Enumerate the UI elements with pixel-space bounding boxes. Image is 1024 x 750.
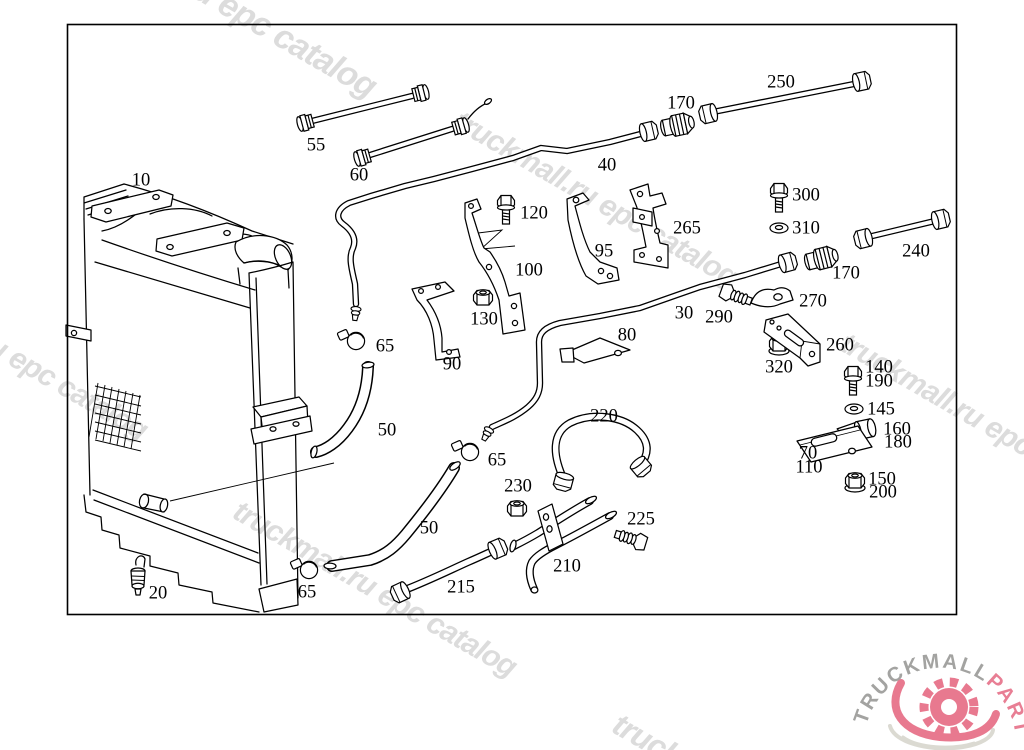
part-label-170: 170 (667, 94, 695, 114)
part-label-200: 200 (869, 483, 897, 503)
part-label-260: 260 (826, 336, 854, 356)
washer-145 (845, 404, 863, 414)
bolt-140-190 (845, 367, 862, 396)
part-label-65: 65 (488, 451, 507, 471)
part-label-265: 265 (673, 219, 701, 239)
part-label-250: 250 (767, 73, 795, 93)
screw-225 (613, 526, 649, 552)
screw-290 (718, 282, 754, 309)
bolt-120 (498, 196, 515, 225)
part-label-130: 130 (470, 310, 498, 330)
part-label-110: 110 (795, 458, 822, 478)
nut-130 (474, 290, 493, 305)
clip-270 (751, 288, 793, 307)
part-label-65: 65 (376, 337, 395, 357)
part-label-80: 80 (618, 326, 637, 346)
part-label-30: 30 (675, 304, 694, 324)
washer-310 (770, 223, 788, 233)
part-label-300: 300 (792, 186, 820, 206)
part-label-230: 230 (504, 477, 532, 497)
part-label-95: 95 (595, 242, 614, 262)
nut-230 (508, 501, 527, 516)
hose-50-upper (310, 361, 374, 458)
parts-diagram: truckmall.ru epc catalogtruckmall.ru epc… (0, 0, 1024, 750)
part-label-10: 10 (132, 171, 151, 191)
part-label-40: 40 (598, 156, 617, 176)
part-label-20: 20 (149, 584, 168, 604)
part-label-310: 310 (792, 219, 820, 239)
part-label-145: 145 (867, 400, 895, 420)
part-label-215: 215 (447, 578, 475, 598)
part-label-220: 220 (590, 407, 618, 427)
part-label-65: 65 (298, 583, 317, 603)
part-label-50: 50 (420, 519, 439, 539)
watermark-text: truckmall.ru epc catalog (46, 0, 384, 106)
bracket-90 (412, 282, 460, 360)
clamp-65-a (337, 329, 365, 349)
part-label-190: 190 (865, 372, 893, 392)
part-label-320: 320 (765, 358, 793, 378)
gear-icon (924, 682, 974, 732)
part-label-180: 180 (884, 433, 912, 453)
part-label-210: 210 (553, 557, 581, 577)
part-label-100: 100 (515, 261, 543, 281)
part-label-120: 120 (520, 204, 548, 224)
drain-plug-20 (131, 556, 145, 595)
pipe-220 (552, 417, 653, 493)
clamp-65-b (451, 440, 479, 460)
logo-text-truckmall: TRUCKMALL (849, 649, 995, 726)
part-label-240: 240 (902, 242, 930, 262)
part-label-60: 60 (350, 166, 369, 186)
part-label-225: 225 (627, 510, 655, 530)
epc-diagram-page: { "diagram": { "background": "#ffffff", … (0, 0, 1024, 750)
part-label-270: 270 (799, 292, 827, 312)
watermark-text: truckmall.ru epc catalog (0, 257, 154, 446)
part-label-170: 170 (832, 264, 860, 284)
pointer-line (170, 463, 334, 501)
part-label-55: 55 (307, 136, 326, 156)
bolt-300 (771, 184, 788, 213)
part-label-90: 90 (443, 355, 462, 375)
part-label-290: 290 (705, 308, 733, 328)
connector-170-upper (659, 111, 696, 139)
nut-150-200 (845, 473, 865, 492)
part-label-50: 50 (378, 421, 397, 441)
